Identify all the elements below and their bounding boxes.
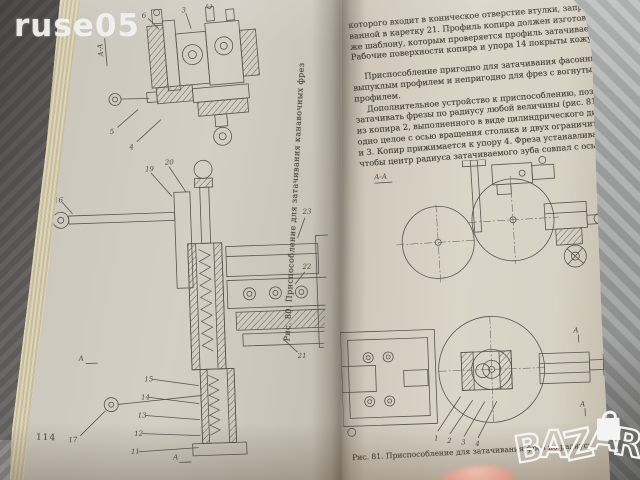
part-label: 19	[145, 165, 155, 173]
part-label: 11	[131, 448, 140, 456]
part-label: 4	[128, 143, 134, 151]
part-label: 1	[434, 434, 439, 442]
book-gutter	[312, 0, 366, 480]
part-label: 21	[297, 352, 307, 360]
open-book: А-А 6 5 4 3	[0, 0, 640, 480]
part-label: 17	[68, 436, 78, 444]
part-label: 23	[301, 208, 312, 216]
figure-81-section-view: А-А	[346, 152, 610, 322]
drawing-lines	[373, 152, 607, 286]
part-label: 3	[461, 438, 466, 446]
body-text: которого входит в коническое отверстие в…	[348, 0, 615, 169]
part-label: 5	[110, 128, 116, 136]
watermark-bazar-logo: BAZAR	[516, 422, 640, 480]
section-arrow-label: А	[572, 326, 579, 334]
part-label: 22	[301, 263, 312, 271]
part-label: 6	[141, 11, 147, 19]
section-arrow-label: А	[579, 400, 586, 408]
part-label: 13	[137, 411, 147, 419]
part-label: 14	[141, 393, 150, 401]
part-label: 2	[446, 437, 452, 445]
section-arrow-label: А	[172, 453, 179, 461]
marketplace-book-photo: А-А 6 5 4 3	[0, 0, 640, 480]
section-label: А-А	[96, 43, 105, 58]
paragraph-continuation: которого входит в коническое отверстие в…	[348, 0, 607, 63]
section-label: А-А	[373, 172, 387, 181]
part-label: 3	[181, 6, 187, 14]
watermark-ruse05: ruse05	[14, 8, 140, 44]
part-label: 20	[164, 158, 175, 166]
section-arrow-label: А	[77, 355, 84, 363]
logo-letter: R	[611, 423, 640, 464]
part-label: 15	[144, 375, 154, 383]
right-page: которого входит в коническое отверстие в…	[342, 0, 610, 480]
part-label: 12	[134, 430, 144, 438]
page-number: 114	[36, 433, 57, 444]
